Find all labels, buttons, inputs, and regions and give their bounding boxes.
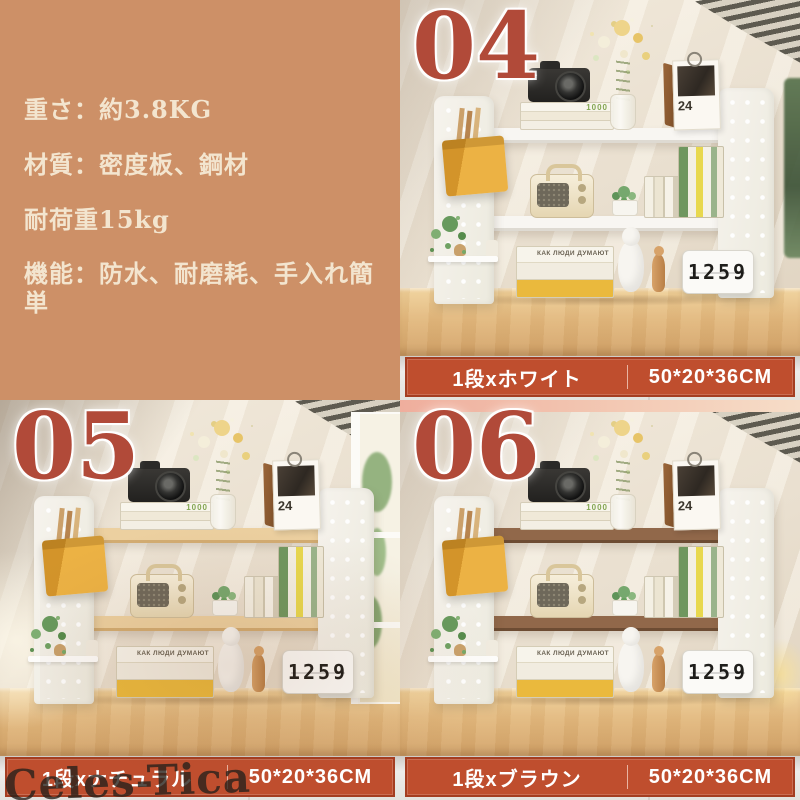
retro-radio: [130, 574, 194, 618]
flip-clock: 1259: [282, 650, 354, 694]
shelf-board-mid: [50, 616, 350, 631]
radio-handle: [146, 564, 182, 581]
desk-calendar: 24: [663, 59, 721, 128]
camera-lens: [555, 471, 586, 502]
spec-line-features: 機能：防水、耐磨耗、手入れ簡単: [24, 260, 384, 318]
scene-number: 04: [412, 0, 540, 92]
radio-handle: [546, 164, 582, 181]
ceramic-vase: [618, 240, 644, 292]
wooden-figurine: [652, 654, 665, 692]
retro-radio: [530, 174, 594, 218]
flower-vase: [610, 94, 636, 130]
spec-line-material: 材質：密度板、鋼材: [24, 151, 384, 180]
retro-radio: [530, 574, 594, 618]
shelf-board-mid: [450, 216, 750, 231]
product-photo-brown: 1000 24 КАК ЛЮДИ ДУМАЮТ 1259 06 1段xブラウン …: [400, 400, 800, 800]
flower-bouquet: [580, 408, 666, 500]
flower-bouquet: [580, 8, 666, 100]
succulent-plant: [608, 186, 640, 216]
desk-calendar: 24: [263, 459, 321, 528]
product-detail-collage: 重さ：約3.8KG 材質：密度板、鋼材 耐荷重15kg 機能：防水、耐磨耗、手入…: [0, 0, 800, 800]
size-label: 50*20*36CM: [628, 766, 793, 789]
book-row: [678, 546, 724, 618]
flip-clock: 1259: [682, 650, 754, 694]
scene-number: 06: [412, 400, 540, 492]
book-title-text: КАК ЛЮДИ ДУМАЮТ: [137, 650, 209, 657]
storage-box: [442, 535, 509, 596]
calendar-page: [672, 459, 721, 530]
spec-line-load: 耐荷重15kg: [24, 206, 384, 235]
hanging-plant: [422, 612, 484, 676]
wooden-figurine: [252, 654, 265, 692]
book-title-text: КАК ЛЮДИ ДУМАЮТ: [537, 650, 609, 657]
camera-lens: [555, 71, 586, 102]
book-stack: КАК ЛЮДИ ДУМАЮТ: [516, 646, 614, 698]
storage-box: [42, 535, 109, 596]
flower-vase: [210, 494, 236, 530]
wooden-figurine: [652, 254, 665, 292]
storage-box: [442, 135, 509, 196]
book-title-text: КАК ЛЮДИ ДУМАЮТ: [537, 250, 609, 257]
size-label: 50*20*36CM: [228, 766, 393, 789]
notebooks: [644, 576, 680, 618]
variant-label: 1段xブラウン: [407, 763, 627, 792]
notebooks: [644, 176, 680, 218]
book-spine-text: 1000: [586, 103, 608, 112]
ceramic-vase: [618, 640, 644, 692]
specs-panel: 重さ：約3.8KG 材質：密度板、鋼材 耐荷重15kg 機能：防水、耐磨耗、手入…: [0, 0, 400, 400]
calendar-day: 24: [678, 98, 693, 113]
book-spine-text: 1000: [586, 503, 608, 512]
clock-digits: 1259: [288, 660, 348, 684]
book-row: [278, 546, 324, 618]
variant-caption-bar: 1段xホワイト 50*20*36CM: [405, 357, 795, 397]
book-row: [678, 146, 724, 218]
flower-bouquet: [180, 408, 266, 500]
succulent-plant: [608, 586, 640, 616]
book-stack: 1000: [520, 102, 614, 130]
notebooks: [244, 576, 280, 618]
hanging-plant: [22, 612, 84, 676]
ceramic-vase: [218, 640, 244, 692]
scene-number: 05: [12, 400, 140, 492]
book-stack: 1000: [120, 502, 214, 530]
hanging-plant: [422, 212, 484, 276]
book-stack: 1000: [520, 502, 614, 530]
book-stack: КАК ЛЮДИ ДУМАЮТ: [516, 246, 614, 298]
spec-line-weight: 重さ：約3.8KG: [24, 96, 384, 125]
book-stack: КАК ЛЮДИ ДУМАЮТ: [116, 646, 214, 698]
shelf-board-mid: [450, 616, 750, 631]
calendar-day: 24: [278, 498, 293, 513]
book-spine-text: 1000: [186, 503, 208, 512]
product-photo-natural: 1000 24 КАК ЛЮДИ ДУМАЮТ 1259 05 1段xナチュラル…: [0, 400, 400, 800]
clock-digits: 1259: [688, 260, 748, 284]
radio-handle: [546, 564, 582, 581]
desk-calendar: 24: [663, 459, 721, 528]
product-photo-white: 1000 24 КАК ЛЮДИ ДУМАЮТ 1259 04 1段xホワイト …: [400, 0, 800, 400]
clock-digits: 1259: [688, 660, 748, 684]
calendar-page: [672, 59, 721, 130]
variant-caption-bar: 1段xブラウン 50*20*36CM: [405, 757, 795, 797]
variant-label: 1段xホワイト: [407, 363, 627, 392]
watermark-text: Celes-Tica: [3, 753, 252, 800]
flower-vase: [610, 494, 636, 530]
camera-lens: [155, 471, 186, 502]
calendar-page: [272, 459, 321, 530]
plant-glimpse: [784, 78, 800, 258]
flip-clock: 1259: [682, 250, 754, 294]
succulent-plant: [208, 586, 240, 616]
size-label: 50*20*36CM: [628, 366, 793, 389]
calendar-day: 24: [678, 498, 693, 513]
